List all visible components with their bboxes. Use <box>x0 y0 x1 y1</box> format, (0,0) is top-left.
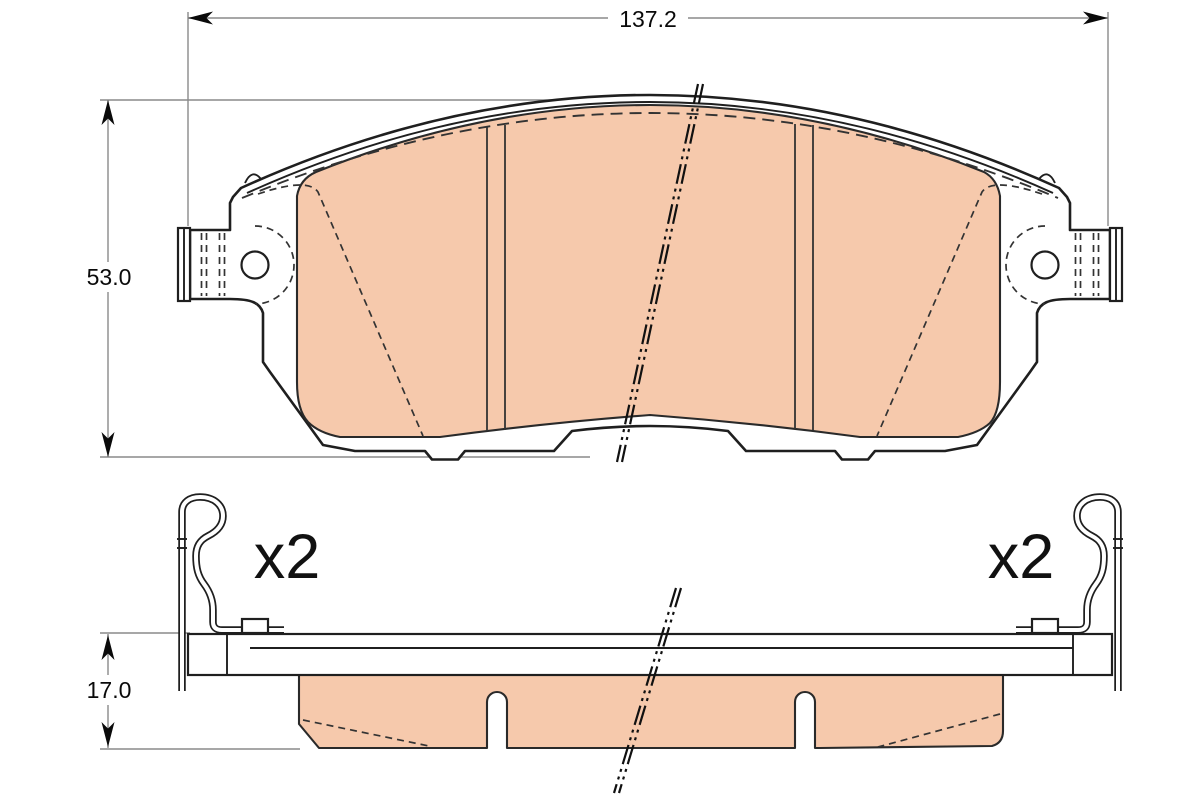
backing-plate-side-view <box>188 634 1112 675</box>
dimension-height-label: 53.0 <box>87 264 132 290</box>
plate-tab-left <box>242 619 268 633</box>
friction-material-side-view <box>299 675 1003 748</box>
mounting-hole-left <box>242 252 269 279</box>
dimension-width-label: 137.2 <box>619 6 677 32</box>
friction-material-top-view <box>297 105 1000 437</box>
quantity-label-left: x2 <box>254 522 321 592</box>
plate-tab-right <box>1032 619 1058 633</box>
dimension-thickness-label: 17.0 <box>87 677 132 703</box>
drawing-canvas: 137.2 53.0 17.0 <box>0 0 1200 800</box>
top-view-brake-pad <box>178 84 1122 462</box>
mounting-hole-right <box>1032 252 1059 279</box>
quantity-label-right: x2 <box>988 522 1055 592</box>
brake-pad-technical-drawing: 137.2 53.0 17.0 <box>0 0 1200 800</box>
